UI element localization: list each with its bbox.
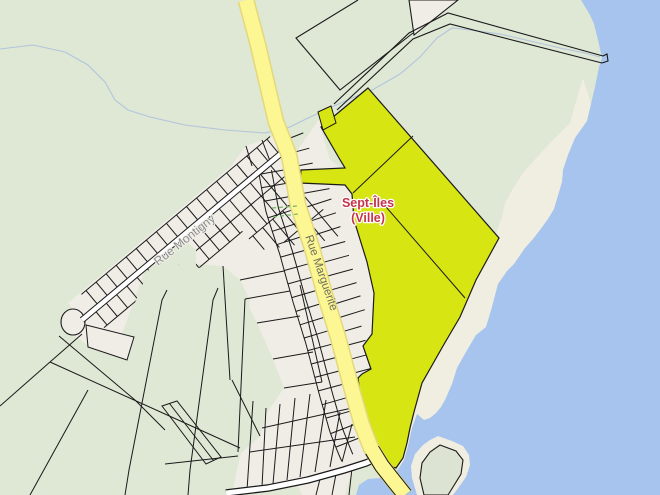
svg-text:(Ville): (Ville): [351, 211, 385, 225]
svg-text:Sept-Îles: Sept-Îles: [342, 195, 394, 210]
